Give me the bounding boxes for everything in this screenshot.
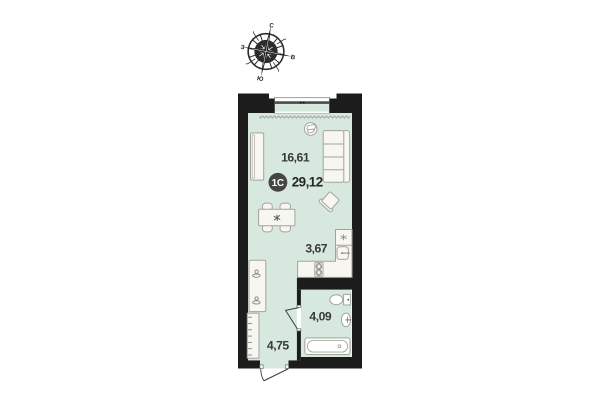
svg-text:1С: 1С <box>272 178 284 189</box>
svg-text:16,61: 16,61 <box>281 151 310 165</box>
svg-text:4,75: 4,75 <box>267 339 289 353</box>
svg-text:3,67: 3,67 <box>305 241 327 255</box>
svg-text:29,12: 29,12 <box>292 174 323 189</box>
svg-text:4,09: 4,09 <box>309 310 331 324</box>
